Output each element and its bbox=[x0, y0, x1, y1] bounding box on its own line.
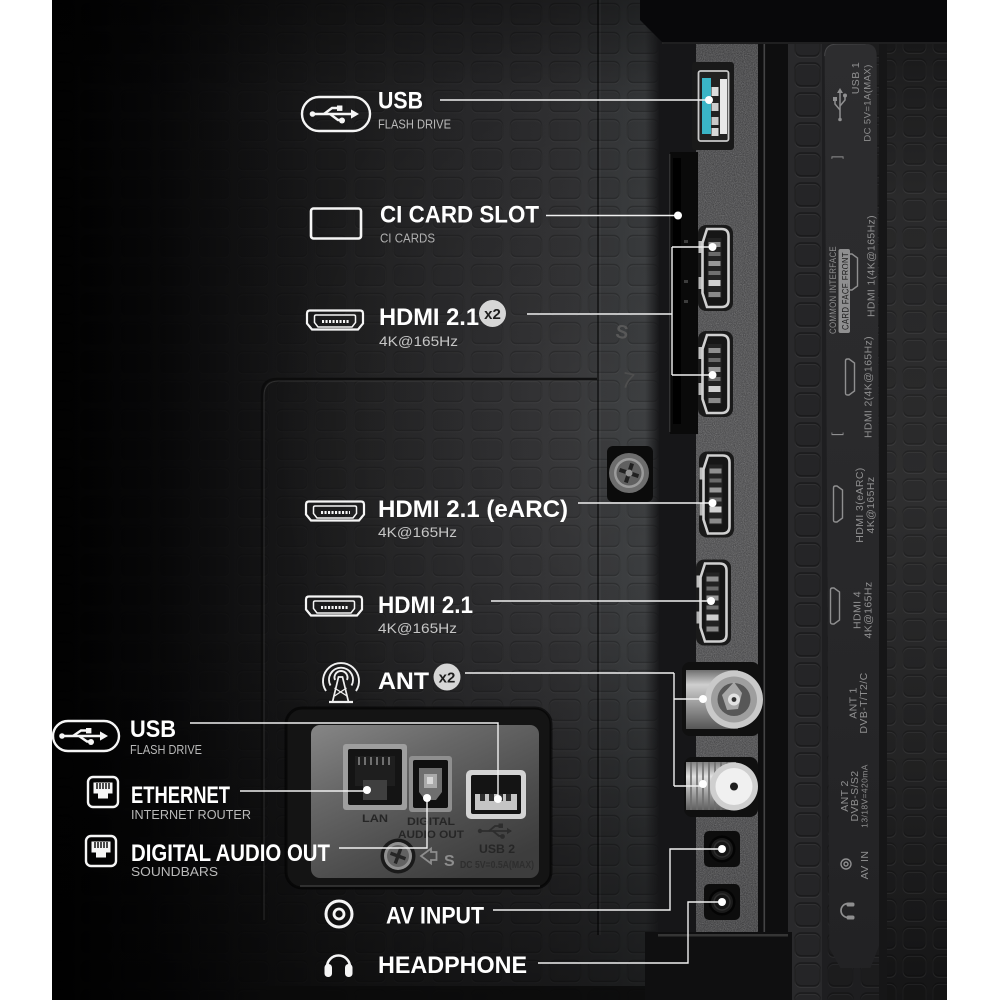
svg-text:4K@165Hz: 4K@165Hz bbox=[378, 524, 457, 540]
svg-text:USB: USB bbox=[130, 716, 176, 743]
svg-text:AUDIO OUT: AUDIO OUT bbox=[398, 829, 464, 841]
svg-text:CI CARD SLOT: CI CARD SLOT bbox=[380, 202, 539, 229]
svg-text:INTERNET ROUTER: INTERNET ROUTER bbox=[131, 808, 251, 822]
svg-text:4K@165Hz: 4K@165Hz bbox=[863, 581, 875, 638]
svg-text:HDMI 1(4K@165Hz): HDMI 1(4K@165Hz) bbox=[866, 215, 878, 317]
svg-text:USB 2: USB 2 bbox=[479, 842, 515, 856]
svg-text:SOUNDBARS: SOUNDBARS bbox=[131, 865, 218, 879]
svg-text:USB: USB bbox=[378, 88, 423, 115]
svg-text:x2: x2 bbox=[484, 306, 501, 323]
svg-text:CARD FACE FRONT: CARD FACE FRONT bbox=[841, 252, 851, 330]
svg-text:S: S bbox=[444, 853, 455, 870]
svg-text:ANT: ANT bbox=[378, 668, 429, 695]
svg-text:[: [ bbox=[829, 432, 844, 436]
svg-text:DC 5V=1A(MAX): DC 5V=1A(MAX) bbox=[863, 64, 874, 141]
svg-text:HEADPHONE: HEADPHONE bbox=[378, 952, 527, 979]
svg-text:]: ] bbox=[829, 155, 844, 159]
svg-text:LAN: LAN bbox=[362, 813, 388, 825]
svg-text:HDMI 2.1: HDMI 2.1 bbox=[378, 592, 473, 619]
svg-text:4K@165Hz: 4K@165Hz bbox=[378, 620, 457, 636]
svg-text:AV IN: AV IN bbox=[859, 851, 871, 880]
svg-text:CI CARDS: CI CARDS bbox=[380, 232, 435, 246]
svg-text:FLASH DRIVE: FLASH DRIVE bbox=[378, 118, 451, 132]
svg-text:DIGITAL AUDIO OUT: DIGITAL AUDIO OUT bbox=[131, 840, 330, 867]
svg-text:x2: x2 bbox=[439, 670, 456, 687]
svg-text:FLASH DRIVE: FLASH DRIVE bbox=[130, 743, 202, 757]
svg-text:4K@165Hz: 4K@165Hz bbox=[865, 476, 877, 533]
svg-text:HDMI 2.1: HDMI 2.1 bbox=[379, 304, 479, 331]
svg-text:COMMON INTERFACE: COMMON INTERFACE bbox=[828, 246, 839, 334]
svg-text:HDMI 2.1 (eARC): HDMI 2.1 (eARC) bbox=[378, 496, 568, 523]
svg-text:ETHERNET: ETHERNET bbox=[131, 782, 230, 809]
svg-text:DIGITAL: DIGITAL bbox=[407, 816, 455, 828]
svg-text:USB 1: USB 1 bbox=[850, 62, 862, 94]
svg-text:4K@165Hz: 4K@165Hz bbox=[379, 333, 458, 349]
svg-text:DC 5V=0.5A(MAX): DC 5V=0.5A(MAX) bbox=[460, 860, 534, 871]
svg-text:AV INPUT: AV INPUT bbox=[386, 903, 484, 930]
svg-text:HDMI 2(4K@165Hz): HDMI 2(4K@165Hz) bbox=[863, 336, 875, 438]
svg-text:13/18V=420mA: 13/18V=420mA bbox=[860, 764, 870, 828]
svg-text:DVB-T/T2/C: DVB-T/T2/C bbox=[858, 672, 870, 733]
